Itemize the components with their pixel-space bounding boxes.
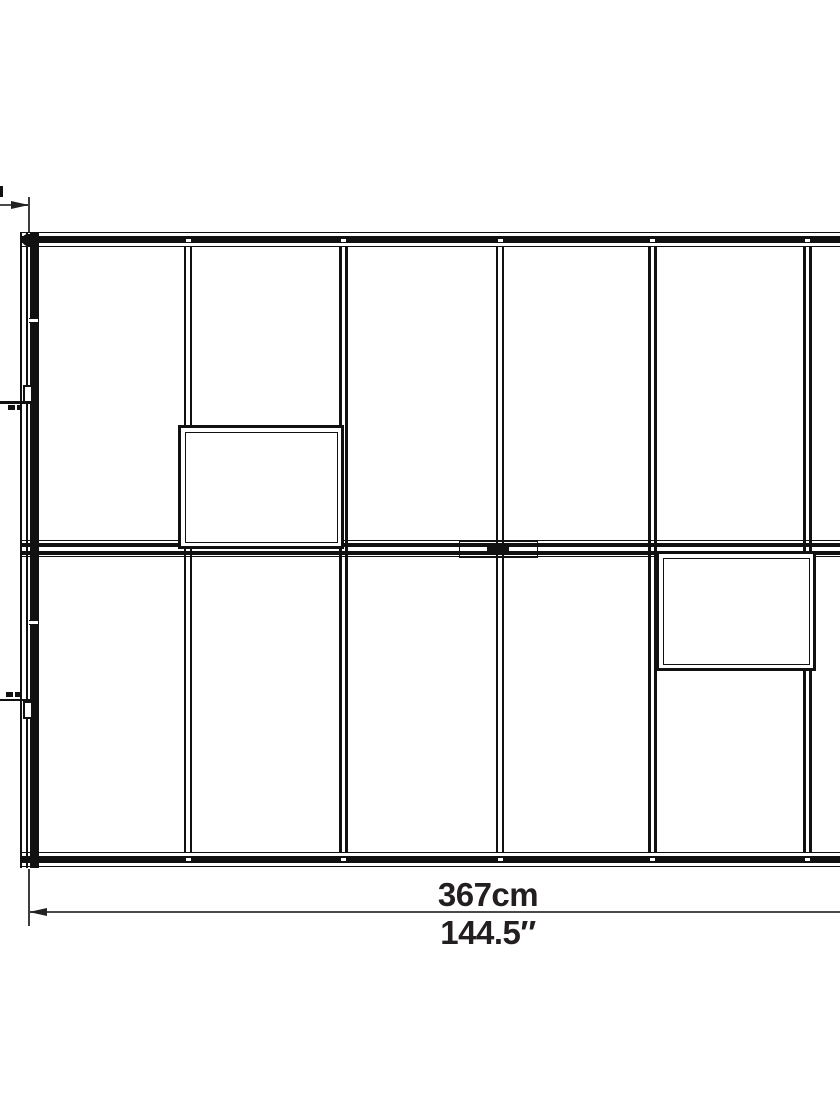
left-edge-joint-tick	[29, 620, 38, 625]
bar-connector-speck	[341, 858, 346, 861]
cropped-dimension-mark	[0, 186, 3, 197]
glazing-bar	[496, 247, 499, 852]
glazing-bar	[345, 247, 348, 852]
metric-dimension-label: 367cm	[377, 878, 599, 911]
glazing-bar	[809, 247, 812, 852]
bottom-dimension-arrow-icon	[29, 908, 47, 916]
hinge-upper-pad	[17, 405, 22, 410]
bar-connector-speck	[341, 239, 346, 242]
roof-vent-upper-inner-frame	[185, 432, 338, 543]
imperial-dimension-label: 144.5″	[377, 916, 599, 949]
hinge-lower-pad	[6, 692, 13, 697]
hinge-upper-pad	[8, 405, 15, 410]
bar-connector-speck	[498, 239, 503, 242]
glazing-bar	[502, 247, 505, 852]
glazing-bar	[339, 247, 342, 852]
glazing-bar	[648, 247, 651, 852]
top-dimension-extension-line	[28, 197, 30, 233]
left-edge-joint-tick	[29, 318, 38, 323]
top-dimension-arrow-icon	[11, 201, 29, 209]
bar-connector-speck	[805, 858, 810, 861]
hinge-lower-bracket	[23, 701, 33, 719]
glazing-bar	[803, 247, 806, 852]
bar-connector-speck	[650, 858, 655, 861]
roof-vent-upper	[178, 425, 344, 549]
bar-connector-speck	[498, 858, 503, 861]
glazing-bar	[654, 247, 657, 852]
bottom-dimension-extension-line	[28, 869, 30, 926]
bottom-dimension-line	[29, 911, 840, 913]
greenhouse-plan-diagram: 367cm 144.5″	[0, 0, 840, 1120]
bar-connector-speck	[805, 239, 810, 242]
glazing-bar	[184, 247, 187, 852]
frame-bottom-edge	[20, 852, 840, 867]
hinge-lower-pad	[15, 692, 20, 697]
corner-cap	[22, 234, 39, 246]
glazing-bar	[190, 247, 193, 852]
roof-vent-lower-inner-frame	[663, 558, 810, 665]
frame-top-edge	[20, 232, 840, 247]
roof-vent-lower	[656, 551, 816, 671]
hinge-upper-bracket	[23, 385, 33, 403]
bar-connector-speck	[186, 239, 191, 242]
bar-connector-speck	[650, 239, 655, 242]
bar-connector-speck	[186, 858, 191, 861]
